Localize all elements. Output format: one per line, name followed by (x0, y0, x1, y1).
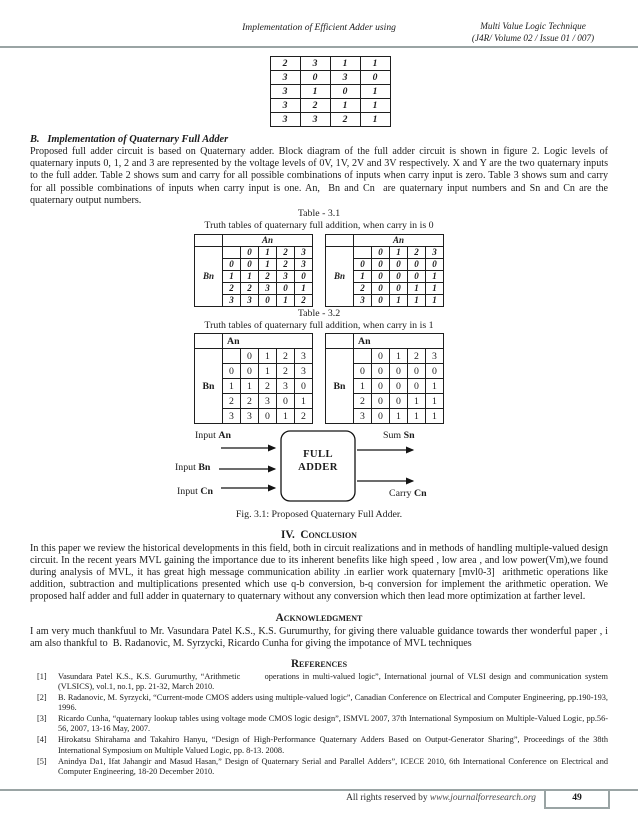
table-cell: 1 (259, 364, 277, 379)
table-cell: 0 (408, 270, 426, 282)
table-cell: 3 (270, 71, 300, 85)
table-cell: 3 (277, 379, 295, 394)
table-cell (326, 234, 354, 246)
table-cell: 3 (426, 246, 444, 258)
reference-text: Ricardo Cunha, “quaternary lookup tables… (58, 714, 608, 733)
table-cell: 2 (354, 282, 372, 294)
table-row: Bn 0 1 2 3 (195, 246, 313, 258)
conclusion-paragraph: In this paper we review the historical d… (30, 543, 608, 604)
reference-item: [4]Hirokatsu Shirahama and Takahiro Hany… (30, 735, 608, 755)
table-row: 3030 (270, 71, 390, 85)
row-header-bn: Bn (195, 246, 223, 306)
acknowledgment-heading: Acknowledgment (30, 612, 608, 624)
carry-cn-prefix: Carry (389, 488, 414, 499)
col-header-an: An (354, 234, 444, 246)
table31-pair: An Bn 0 1 2 3 00123112302230133012 (30, 234, 608, 307)
section-b-paragraph: Proposed full adder circuit is based on … (30, 146, 608, 207)
table-cell: 1 (259, 246, 277, 258)
reference-number: [5] (37, 757, 47, 767)
table-cell: 1 (354, 270, 372, 282)
rights-prefix: All rights reserved by (346, 793, 430, 803)
table-cell: 2 (241, 282, 259, 294)
table-cell: 0 (426, 364, 444, 379)
table31-sum: An Bn 0 1 2 3 00123112302230133012 (194, 234, 313, 307)
box-line-1: FULL (281, 448, 355, 461)
input-an-label: Input An (195, 430, 231, 441)
reference-text: Vasundara Patel K.S., K.S. Gurumurthy, “… (58, 672, 608, 691)
table-cell: 3 (426, 349, 444, 364)
input-an-var: An (218, 430, 231, 441)
table-cell: 2 (277, 246, 295, 258)
table-cell: 0 (390, 270, 408, 282)
input-bn-var: Bn (198, 462, 210, 473)
table-cell: 0 (372, 409, 390, 424)
table-row: An (195, 234, 313, 246)
table-cell: 1 (360, 113, 390, 127)
table-cell: 2 (408, 349, 426, 364)
table-cell: 2 (295, 409, 313, 424)
reference-number: [4] (37, 735, 47, 745)
table-cell: 1 (354, 379, 372, 394)
table-cell: 1 (223, 379, 241, 394)
table-row: An (195, 334, 313, 349)
table-cell: 1 (259, 349, 277, 364)
reference-number: [3] (37, 714, 47, 724)
row-header-bn: Bn (326, 246, 354, 306)
journal-issue: (J4R/ Volume 02 / Issue 01 / 007) (458, 33, 608, 45)
table-cell: 2 (277, 364, 295, 379)
table-cell: 2 (223, 282, 241, 294)
table-row: 3211 (270, 99, 390, 113)
col-header-an: An (223, 234, 313, 246)
sum-sn-prefix: Sum (383, 430, 404, 441)
table-cell: 2 (277, 258, 295, 270)
table-cell: 1 (241, 379, 259, 394)
table32-title: Table - 3.2 (30, 308, 608, 319)
reference-text: Hirokatsu Shirahama and Takahiro Hanyu, … (58, 735, 608, 754)
table-cell: 0 (390, 364, 408, 379)
table-cell: 3 (295, 364, 313, 379)
table-cell: 1 (426, 282, 444, 294)
table-cell (326, 334, 354, 349)
table-cell (195, 234, 223, 246)
table-cell: 3 (270, 99, 300, 113)
table-cell: 0 (372, 394, 390, 409)
table-cell: 1 (390, 409, 408, 424)
table-cell: 1 (408, 394, 426, 409)
table-cell: 3 (277, 270, 295, 282)
table-cell: 0 (295, 379, 313, 394)
top-table-wrap: 23113030310132113321 (30, 52, 608, 127)
table-cell: 1 (300, 85, 330, 99)
table-cell: 0 (372, 282, 390, 294)
table-cell: 1 (259, 258, 277, 270)
table-cell: 1 (426, 270, 444, 282)
table-cell: 0 (330, 85, 360, 99)
table-cell: 3 (330, 71, 360, 85)
table-cell: 0 (277, 282, 295, 294)
table-cell: 2 (354, 394, 372, 409)
table-cell: 1 (426, 409, 444, 424)
table-cell: 1 (295, 282, 313, 294)
table-cell: 0 (372, 258, 390, 270)
input-an-prefix: Input (195, 430, 218, 441)
table32-caption: Truth tables of quaternary full addition… (30, 320, 608, 331)
table-cell: 3 (295, 246, 313, 258)
table-cell: 0 (259, 409, 277, 424)
table-row: An (326, 334, 444, 349)
table-cell: 2 (259, 270, 277, 282)
box-line-2: ADDER (281, 461, 355, 474)
table-cell: 2 (277, 349, 295, 364)
page-number: 49 (544, 791, 610, 809)
table-row: Bn 0 1 2 3 (326, 246, 444, 258)
table-cell: 0 (408, 258, 426, 270)
table-cell: 0 (360, 71, 390, 85)
table-cell: 3 (223, 409, 241, 424)
table-cell: 1 (390, 294, 408, 306)
table-cell: 3 (270, 85, 300, 99)
references-list: [1]Vasundara Patel K.S., K.S. Gurumurthy… (30, 672, 608, 777)
table-cell: 0 (372, 270, 390, 282)
table-cell: 0 (241, 246, 259, 258)
table-cell: 0 (241, 364, 259, 379)
table-cell: 0 (372, 379, 390, 394)
sum-sn-var: Sn (404, 430, 415, 441)
row-header-bn: Bn (195, 349, 223, 424)
table-cell: 1 (426, 379, 444, 394)
sum-sn-label: Sum Sn (383, 430, 415, 441)
full-adder-box-label: FULL ADDER (281, 448, 355, 474)
table-cell: 0 (295, 270, 313, 282)
table-cell: 2 (330, 113, 360, 127)
col-header-an: An (223, 334, 313, 349)
table-cell (354, 349, 372, 364)
table-row: Bn 0 1 2 3 (326, 349, 444, 364)
table-cell: 0 (372, 364, 390, 379)
table-cell: 0 (426, 258, 444, 270)
row-header-bn: Bn (326, 349, 354, 424)
reference-item: [3]Ricardo Cunha, “quaternary lookup tab… (30, 714, 608, 734)
table-cell: 2 (295, 294, 313, 306)
table-cell: 3 (300, 113, 330, 127)
table-cell: 2 (259, 379, 277, 394)
table-cell: 1 (330, 57, 360, 71)
table-cell: 1 (223, 270, 241, 282)
table-cell: 1 (426, 394, 444, 409)
table-cell: 3 (354, 294, 372, 306)
table-cell (223, 349, 241, 364)
table31-carry: An Bn 0 1 2 3 00000100012001130111 (325, 234, 444, 307)
table-cell: 1 (360, 57, 390, 71)
paper-page: Implementation of Efficient Adder using … (0, 0, 638, 826)
reference-item: [1]Vasundara Patel K.S., K.S. Gurumurthy… (30, 672, 608, 692)
table-cell: 1 (330, 99, 360, 113)
table-cell: 0 (241, 349, 259, 364)
table-cell: 1 (360, 99, 390, 113)
table-cell: 1 (277, 294, 295, 306)
table-cell: 3 (241, 294, 259, 306)
table-cell: 0 (277, 394, 295, 409)
acknowledgment-paragraph: I am very much thankfuul to Mr. Vasundar… (30, 626, 608, 650)
reference-item: [5]Anindya Da1, Ifat Jahangir and Masud … (30, 757, 608, 777)
table-cell: 3 (259, 282, 277, 294)
table-cell: 0 (390, 379, 408, 394)
table-cell: 2 (223, 394, 241, 409)
table31-title: Table - 3.1 (30, 208, 608, 219)
table31-caption: Truth tables of quaternary full addition… (30, 220, 608, 231)
table-cell: 0 (408, 379, 426, 394)
reference-text: Anindya Da1, Ifat Jahangir and Masud Has… (58, 757, 608, 776)
carry-cn-var: Cn (414, 488, 427, 499)
table-cell: 0 (259, 294, 277, 306)
section-b-heading: B. Implementation of Quaternary Full Add… (30, 134, 608, 145)
table-cell: 0 (390, 282, 408, 294)
table-cell: 0 (241, 258, 259, 270)
conclusion-heading: IV. Conclusion (30, 529, 608, 541)
table-cell: 3 (241, 409, 259, 424)
table-cell: 0 (408, 364, 426, 379)
references-heading: References (30, 658, 608, 670)
table-cell: 1 (241, 270, 259, 282)
input-cn-prefix: Input (177, 486, 200, 497)
table-cell: 0 (390, 394, 408, 409)
table-cell: 1 (295, 394, 313, 409)
table-cell: 3 (270, 113, 300, 127)
table-cell: 1 (408, 409, 426, 424)
page-content: 23113030310132113321 B. Implementation o… (30, 52, 608, 778)
table-cell: 1 (408, 282, 426, 294)
input-cn-label: Input Cn (177, 486, 213, 497)
page-footer: All rights reserved by www.journalforres… (0, 789, 638, 819)
rights-text: All rights reserved by www.journalforres… (346, 793, 536, 803)
table-cell: 0 (372, 349, 390, 364)
table-cell: 0 (354, 364, 372, 379)
col-header-an: An (354, 334, 444, 349)
table-row: 2311 (270, 57, 390, 71)
table-cell: 1 (277, 409, 295, 424)
reference-number: [2] (37, 693, 47, 703)
reference-text: B. Radanovic, M. Syrzycki, “Current-mode… (58, 693, 608, 712)
table-cell: 0 (372, 246, 390, 258)
table32-sum: An Bn 0 1 2 3 00123112302230133012 (194, 333, 313, 424)
journal-url: www.journalforresearch.org (430, 793, 536, 803)
table-cell: 1 (390, 246, 408, 258)
input-cn-var: Cn (200, 486, 213, 497)
table-cell: 2 (270, 57, 300, 71)
table-cell: 3 (295, 258, 313, 270)
table-cell: 0 (390, 258, 408, 270)
table-cell (223, 246, 241, 258)
header-rule (0, 46, 638, 48)
journal-name: Multi Value Logic Technique (458, 21, 608, 33)
table-cell: 2 (300, 99, 330, 113)
table-row: An (326, 234, 444, 246)
table-cell: 1 (426, 294, 444, 306)
table-cell: 2 (241, 394, 259, 409)
table-cell: 3 (259, 394, 277, 409)
input-bn-prefix: Input (175, 462, 198, 473)
table-cell (195, 334, 223, 349)
carry-cn-label: Carry Cn (389, 488, 427, 499)
table-cell: 0 (223, 364, 241, 379)
table-cell: 0 (354, 258, 372, 270)
table-cell: 3 (300, 57, 330, 71)
journal-info: Multi Value Logic Technique (J4R/ Volume… (458, 21, 608, 44)
table-cell: 3 (295, 349, 313, 364)
table-cell: 0 (372, 294, 390, 306)
full-adder-figure: Input An Input Bn Input Cn Sum Sn Carry … (159, 428, 479, 508)
input-bn-label: Input Bn (175, 462, 210, 473)
table-cell: 1 (390, 349, 408, 364)
table-cell: 1 (360, 85, 390, 99)
table-cell: 3 (354, 409, 372, 424)
table-cell: 0 (223, 258, 241, 270)
table-row: 3101 (270, 85, 390, 99)
table-cell (354, 246, 372, 258)
reference-item: [2]B. Radanovic, M. Syrzycki, “Current-m… (30, 693, 608, 713)
table32-pair: An Bn 0 1 2 3 00123112302230133012 (30, 333, 608, 424)
table32-carry: An Bn 0 1 2 3 00000100012001130111 (325, 333, 444, 424)
table-cell: 1 (408, 294, 426, 306)
table-row: 3321 (270, 113, 390, 127)
table-cell: 2 (408, 246, 426, 258)
reference-number: [1] (37, 672, 47, 682)
table-cell: 3 (223, 294, 241, 306)
table-cell: 0 (300, 71, 330, 85)
figure-caption: Fig. 3.1: Proposed Quaternary Full Adder… (30, 509, 608, 520)
quaternary-values-table: 23113030310132113321 (270, 56, 391, 127)
table-row: Bn 0 1 2 3 (195, 349, 313, 364)
